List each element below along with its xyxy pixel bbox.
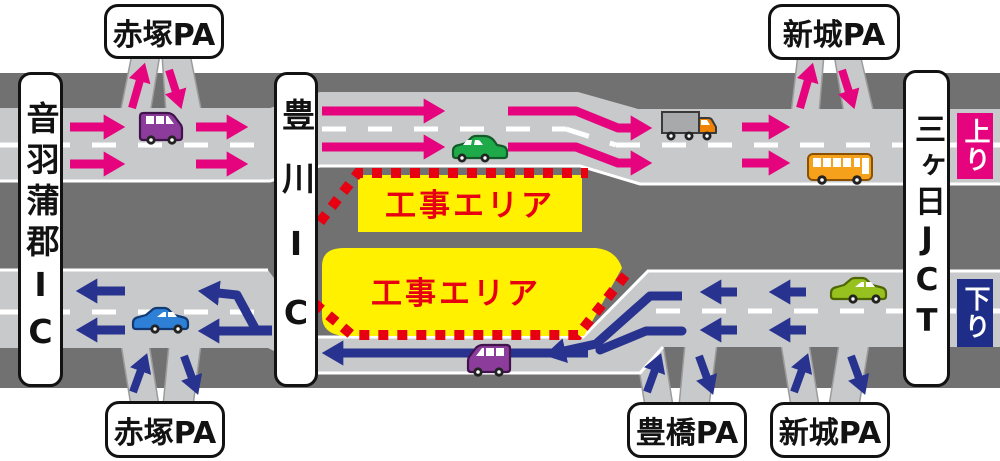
sign-text: 豊橋PA <box>636 408 738 452</box>
sign-text: 音羽蒲郡IC <box>24 101 57 359</box>
sign-akatsuka-pa-down: 赤塚PA <box>105 401 225 458</box>
van-icon <box>468 345 510 377</box>
sign-mikkabi-jct: 三ヶ日JCT <box>903 70 950 387</box>
sign-otowa-gamagori-ic: 音羽蒲郡IC <box>18 72 63 387</box>
ramp-toyohashi-bottom-exit <box>679 344 717 406</box>
sign-shinshiro-pa-up: 新城PA <box>768 4 900 60</box>
direction-badge-down: 下り <box>957 279 993 347</box>
badge-text: 下り <box>962 285 988 341</box>
badge-text: 上り <box>962 118 988 174</box>
sign-text: 豊川IC <box>280 98 313 362</box>
sign-toyohashi-pa-down: 豊橋PA <box>627 402 747 458</box>
sign-toyokawa-ic: 豊川IC <box>274 72 318 387</box>
direction-badge-up: 上り <box>957 113 993 179</box>
van-icon <box>140 113 182 145</box>
sign-text: 赤塚PA <box>114 408 216 452</box>
ramp-akatsuka-bottom-exit <box>163 344 201 406</box>
sign-text: 三ヶ日JCT <box>911 113 942 344</box>
construction-area-label-upper: 工事エリア <box>358 176 582 228</box>
sign-text: 新城PA <box>783 10 885 54</box>
road-map <box>0 0 1000 461</box>
ramp-akatsuka-top-entry <box>162 54 202 114</box>
highway-construction-diagram: 工事エリア 工事エリア 音羽蒲郡IC 豊川IC 三ヶ日JCT 赤塚PA 新城PA… <box>0 0 1000 461</box>
construction-area-label-lower: 工事エリア <box>322 250 590 330</box>
sign-text: 赤塚PA <box>113 10 215 54</box>
bus-icon <box>808 154 872 185</box>
sign-shinshiro-pa-down: 新城PA <box>770 402 890 458</box>
construction-area-text: 工事エリア <box>371 268 541 313</box>
construction-area-text: 工事エリア <box>385 180 555 225</box>
sign-text: 新城PA <box>779 408 881 452</box>
sign-akatsuka-pa-up: 赤塚PA <box>104 4 224 59</box>
